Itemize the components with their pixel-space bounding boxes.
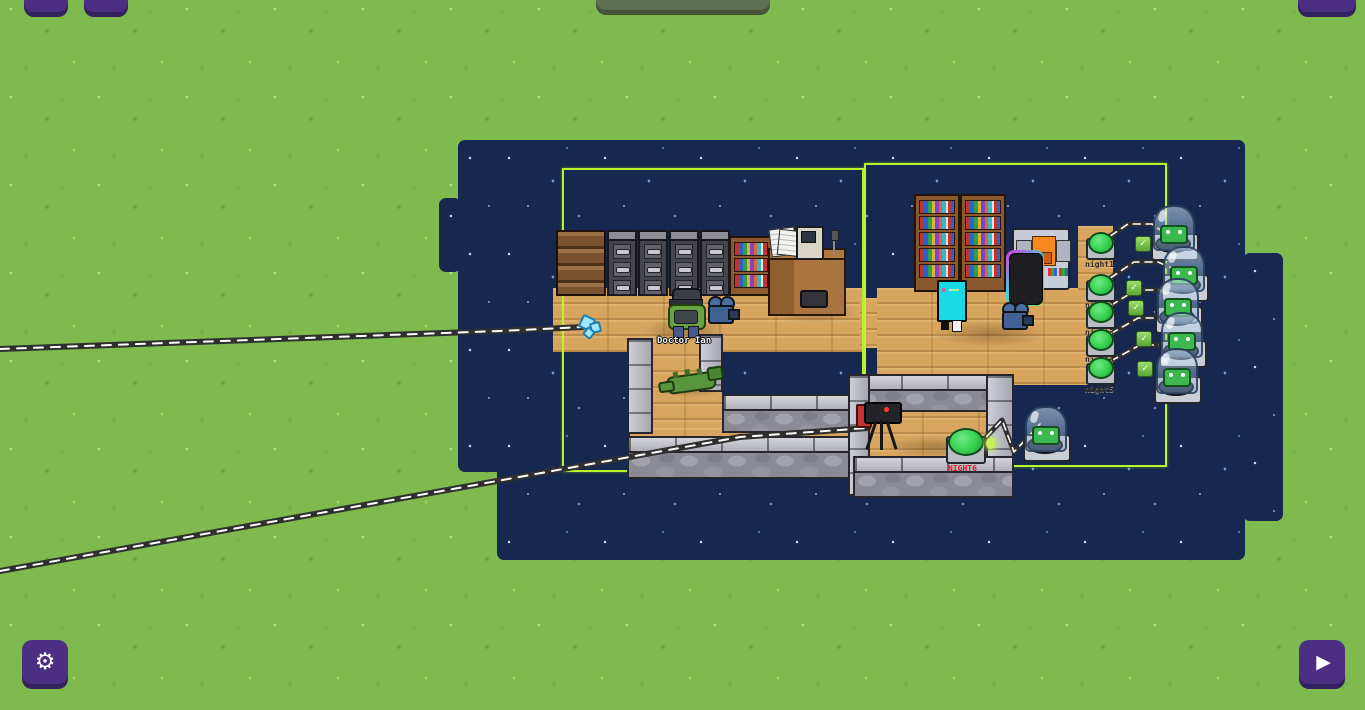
filing-cabinet[interactable] (700, 230, 730, 296)
switch-label: night1 (1085, 260, 1114, 269)
bookshelf-small[interactable] (729, 236, 773, 296)
filing-cabinet[interactable] (638, 230, 668, 296)
stone-wall[interactable] (627, 451, 860, 479)
character-name-label: Doctor Ian (657, 336, 711, 346)
top-center-button[interactable] (596, 0, 770, 10)
video-camera-icon[interactable] (1000, 302, 1030, 328)
night-sky-region (1243, 253, 1283, 521)
bookshelf-tall[interactable] (960, 194, 1006, 292)
tripod-camera[interactable] (856, 396, 908, 456)
microphone[interactable] (830, 230, 838, 254)
filing-cabinet[interactable] (669, 230, 699, 296)
switch-night6[interactable] (944, 428, 984, 462)
alien-pod[interactable] (1022, 406, 1068, 462)
switch-label: night5 (1085, 385, 1114, 394)
checkmark-node[interactable]: ✓ (1136, 331, 1152, 347)
video-camera-icon[interactable] (706, 296, 736, 322)
gaming-chair[interactable] (1006, 250, 1044, 306)
desktop-computer[interactable] (796, 226, 824, 260)
checkmark-node[interactable]: ✓ (1126, 280, 1142, 296)
play-button[interactable]: ▶ (1299, 640, 1345, 684)
night-sky-region (439, 198, 461, 272)
wooden-shelf[interactable] (556, 230, 606, 296)
character-doctor-ian[interactable] (664, 288, 706, 338)
switch-night3[interactable] (1084, 301, 1114, 327)
switch-night2[interactable] (1084, 274, 1114, 300)
character-fridge-costume[interactable] (937, 280, 965, 330)
top-right-button[interactable] (1298, 0, 1356, 12)
checkmark-node[interactable]: ✓ (1128, 300, 1144, 316)
stone-wall[interactable] (853, 471, 1014, 498)
toolbar-button-1[interactable] (24, 0, 68, 12)
alien-pod[interactable] (1153, 348, 1199, 404)
switch-night5[interactable] (1084, 357, 1114, 383)
toolbar-button-2[interactable] (84, 0, 128, 12)
stone-pillar[interactable] (627, 338, 653, 434)
checkmark-node[interactable]: ✓ (1135, 236, 1151, 252)
briefcase[interactable] (800, 290, 828, 308)
settings-button[interactable]: ⚙ (22, 640, 68, 684)
switch-night1[interactable] (1084, 232, 1114, 258)
switch-night4[interactable] (1084, 329, 1114, 355)
filing-cabinet[interactable] (607, 230, 637, 296)
glow-orb (986, 438, 995, 449)
game-canvas[interactable]: Doctor Ian nig (0, 0, 1365, 710)
checkmark-node[interactable]: ✓ (1137, 361, 1153, 377)
switch-label: NIGHT6 (948, 464, 977, 473)
bookshelf-tall[interactable] (914, 194, 960, 292)
stone-wall[interactable] (722, 409, 860, 433)
gear-icon: ⚙ (35, 651, 56, 674)
play-icon: ▶ (1313, 653, 1331, 672)
